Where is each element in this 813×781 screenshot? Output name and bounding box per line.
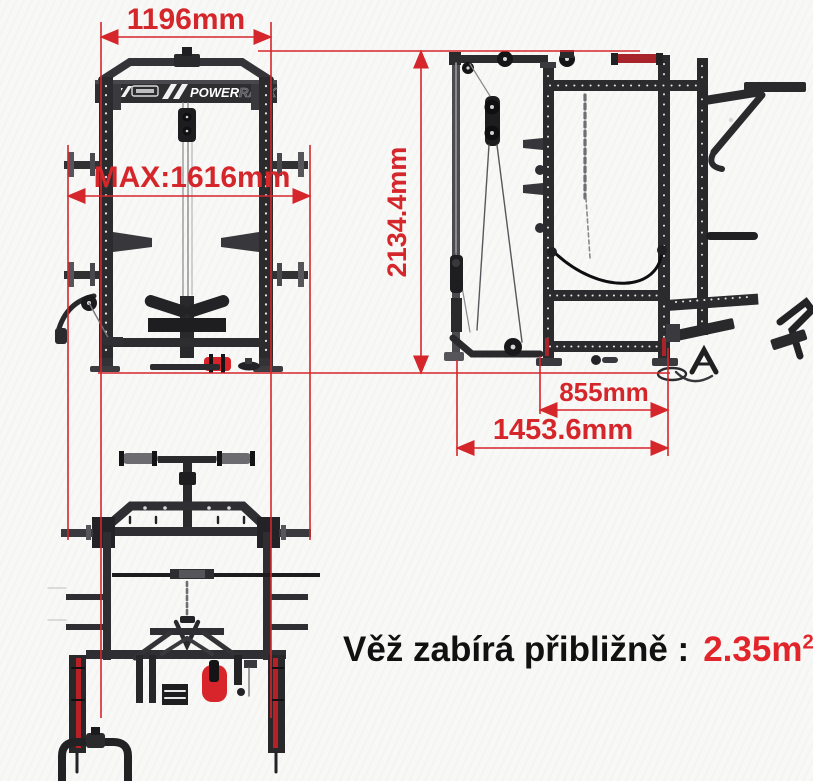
front-view-rack: POWER RACK	[55, 47, 308, 373]
resistance-band	[554, 250, 662, 283]
footprint-value-sup: 2	[802, 631, 813, 653]
pullup-bar-top	[119, 451, 255, 532]
barbell	[112, 573, 320, 577]
footprint-value: 2.35m	[703, 630, 802, 669]
dim-label-height: 2134.4mm	[382, 147, 412, 278]
dim-label-depth-total: 1453.6mm	[493, 414, 633, 446]
red-band	[617, 54, 657, 63]
logo-power-text: POWER	[190, 85, 240, 100]
dim-label-max-width: MAX:1616mm	[94, 161, 291, 194]
dimension-labels: 1196mm MAX:1616mm 2134.4mm 855mm 1453.6m…	[94, 3, 649, 446]
accessories-top	[136, 655, 257, 705]
dim-label-depth-inner: 855mm	[559, 377, 649, 407]
footprint-caption: Věž zabírá přibližně :2.35m2	[343, 630, 803, 670]
dimension-diagram: POWER RACK	[0, 0, 813, 781]
top-view-rack	[48, 451, 320, 781]
footprint-caption-label: Věž zabírá přibližně :	[343, 630, 689, 669]
side-view-rack	[444, 50, 812, 381]
spotter-attachments	[658, 294, 812, 382]
pullup-bracket	[708, 82, 806, 169]
leg-developer	[90, 293, 283, 372]
dim-label-front-width: 1196mm	[127, 3, 245, 36]
